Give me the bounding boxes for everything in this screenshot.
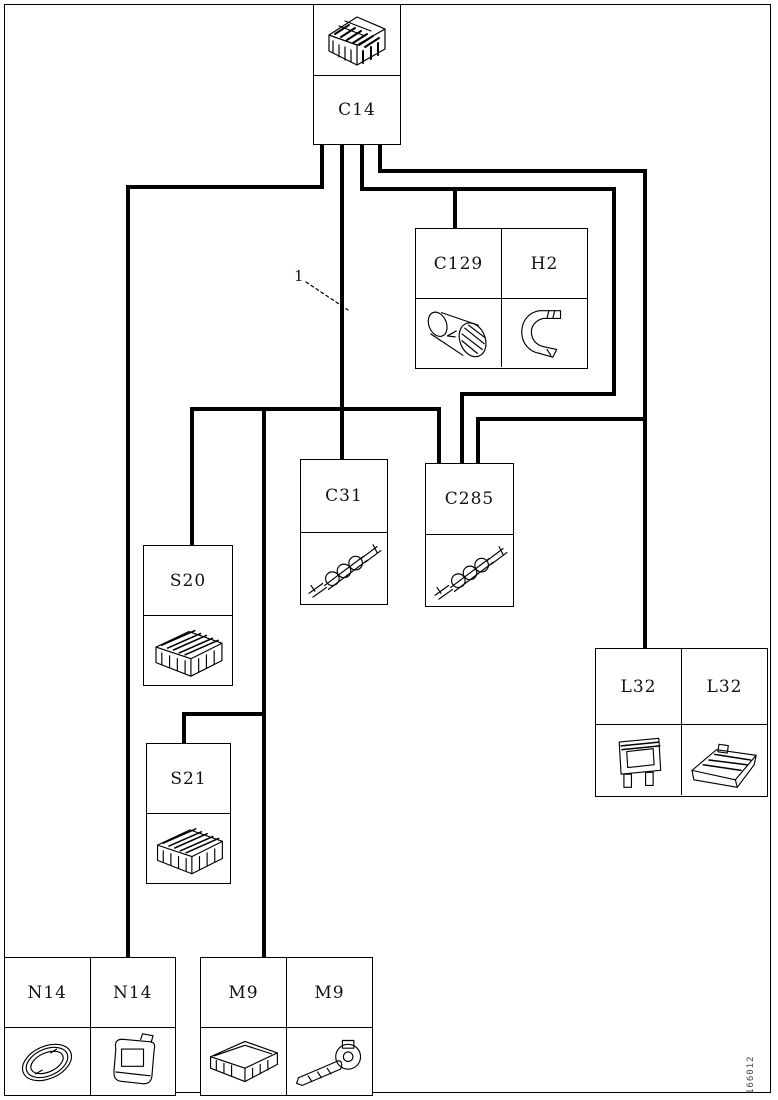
l32-side-illustration	[681, 725, 767, 795]
wire-segment	[643, 169, 647, 650]
h2-bracket-illustration	[501, 299, 587, 367]
n14-horn-illustration	[90, 1028, 176, 1095]
m9-lever-illustration	[286, 1028, 372, 1095]
wire-segment	[126, 185, 324, 189]
wire-segment	[378, 169, 647, 173]
wire-segment	[190, 407, 441, 411]
m9-module-illustration	[201, 1028, 286, 1095]
wire-segment	[190, 407, 194, 547]
component-box-c129-h2: C129 H2	[415, 228, 588, 369]
component-box-n14: N14 N14	[4, 957, 176, 1096]
c129-horn-illustration	[416, 299, 501, 367]
component-box-c31: C31	[300, 459, 388, 605]
m9-right-label: M9	[286, 958, 372, 1027]
wire-segment	[262, 407, 266, 959]
wire-segment	[360, 145, 364, 191]
s20-label: S20	[144, 546, 232, 615]
component-box-c285: C285	[425, 463, 514, 607]
wire-segment	[182, 712, 186, 745]
n14-left-label: N14	[5, 958, 90, 1027]
c31-label: C31	[301, 460, 387, 532]
component-box-s21: S21	[146, 743, 231, 884]
wire-segment	[437, 407, 441, 465]
wire-segment	[460, 392, 616, 396]
s21-label: S21	[147, 744, 230, 813]
c31-splice-illustration	[301, 533, 387, 603]
wiring-diagram-page: 1 C14 C129 H2	[0, 0, 778, 1100]
component-box-s20: S20	[143, 545, 233, 686]
wire-segment	[453, 187, 457, 230]
n14-ring-illustration	[5, 1028, 90, 1095]
c285-label: C285	[426, 464, 513, 534]
c14-label: C14	[314, 76, 400, 143]
wire-segment	[476, 417, 480, 465]
figure-id: 166012	[746, 1034, 756, 1094]
l32-front-illustration	[596, 725, 681, 795]
wire-segment	[320, 145, 324, 189]
component-box-c14: C14	[313, 4, 401, 145]
l32-left-label: L32	[596, 649, 681, 724]
c129-label: C129	[416, 229, 501, 298]
component-box-m9: M9 M9	[200, 957, 373, 1096]
s20-relaybox-illustration	[144, 616, 232, 684]
wire-segment	[360, 187, 616, 191]
component-box-l32: L32 L32	[595, 648, 768, 797]
wire-segment	[460, 392, 464, 465]
s21-relaybox-illustration	[147, 814, 230, 882]
c285-splice-illustration	[426, 535, 513, 605]
c14-connector-illustration	[314, 5, 400, 75]
n14-right-label: N14	[90, 958, 176, 1027]
callout-1-leader-line	[300, 278, 352, 314]
wire-segment	[182, 712, 266, 716]
l32-right-label: L32	[681, 649, 767, 724]
wire-segment	[612, 187, 616, 396]
h2-label: H2	[501, 229, 587, 298]
wire-segment	[126, 185, 130, 959]
wire-segment	[476, 417, 647, 421]
m9-left-label: M9	[201, 958, 286, 1027]
